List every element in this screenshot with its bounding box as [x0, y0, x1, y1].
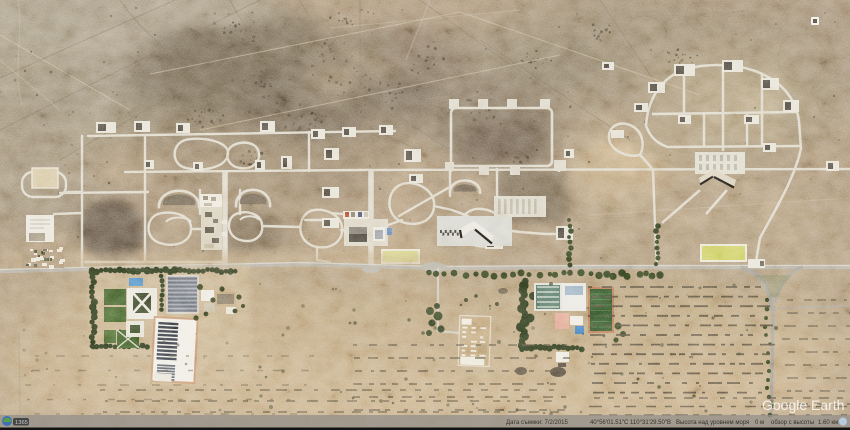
svg-text:1365: 1365	[15, 420, 28, 426]
svg-text:Дата съемки: 7/2/2015: Дата съемки: 7/2/2015	[506, 420, 568, 426]
svg-text:40°56'01.51″С 110°31'29.50″В: 40°56'01.51″С 110°31'29.50″В	[590, 420, 671, 426]
svg-text:0 м: 0 м	[755, 420, 764, 426]
svg-text:1.60 км: 1.60 км	[818, 420, 838, 426]
svg-text:Google Earth: Google Earth	[762, 397, 845, 413]
svg-text:обзор с высоты: обзор с высоты	[771, 420, 814, 426]
svg-text:Высота над уровнем моря: Высота над уровнем моря	[676, 420, 749, 426]
